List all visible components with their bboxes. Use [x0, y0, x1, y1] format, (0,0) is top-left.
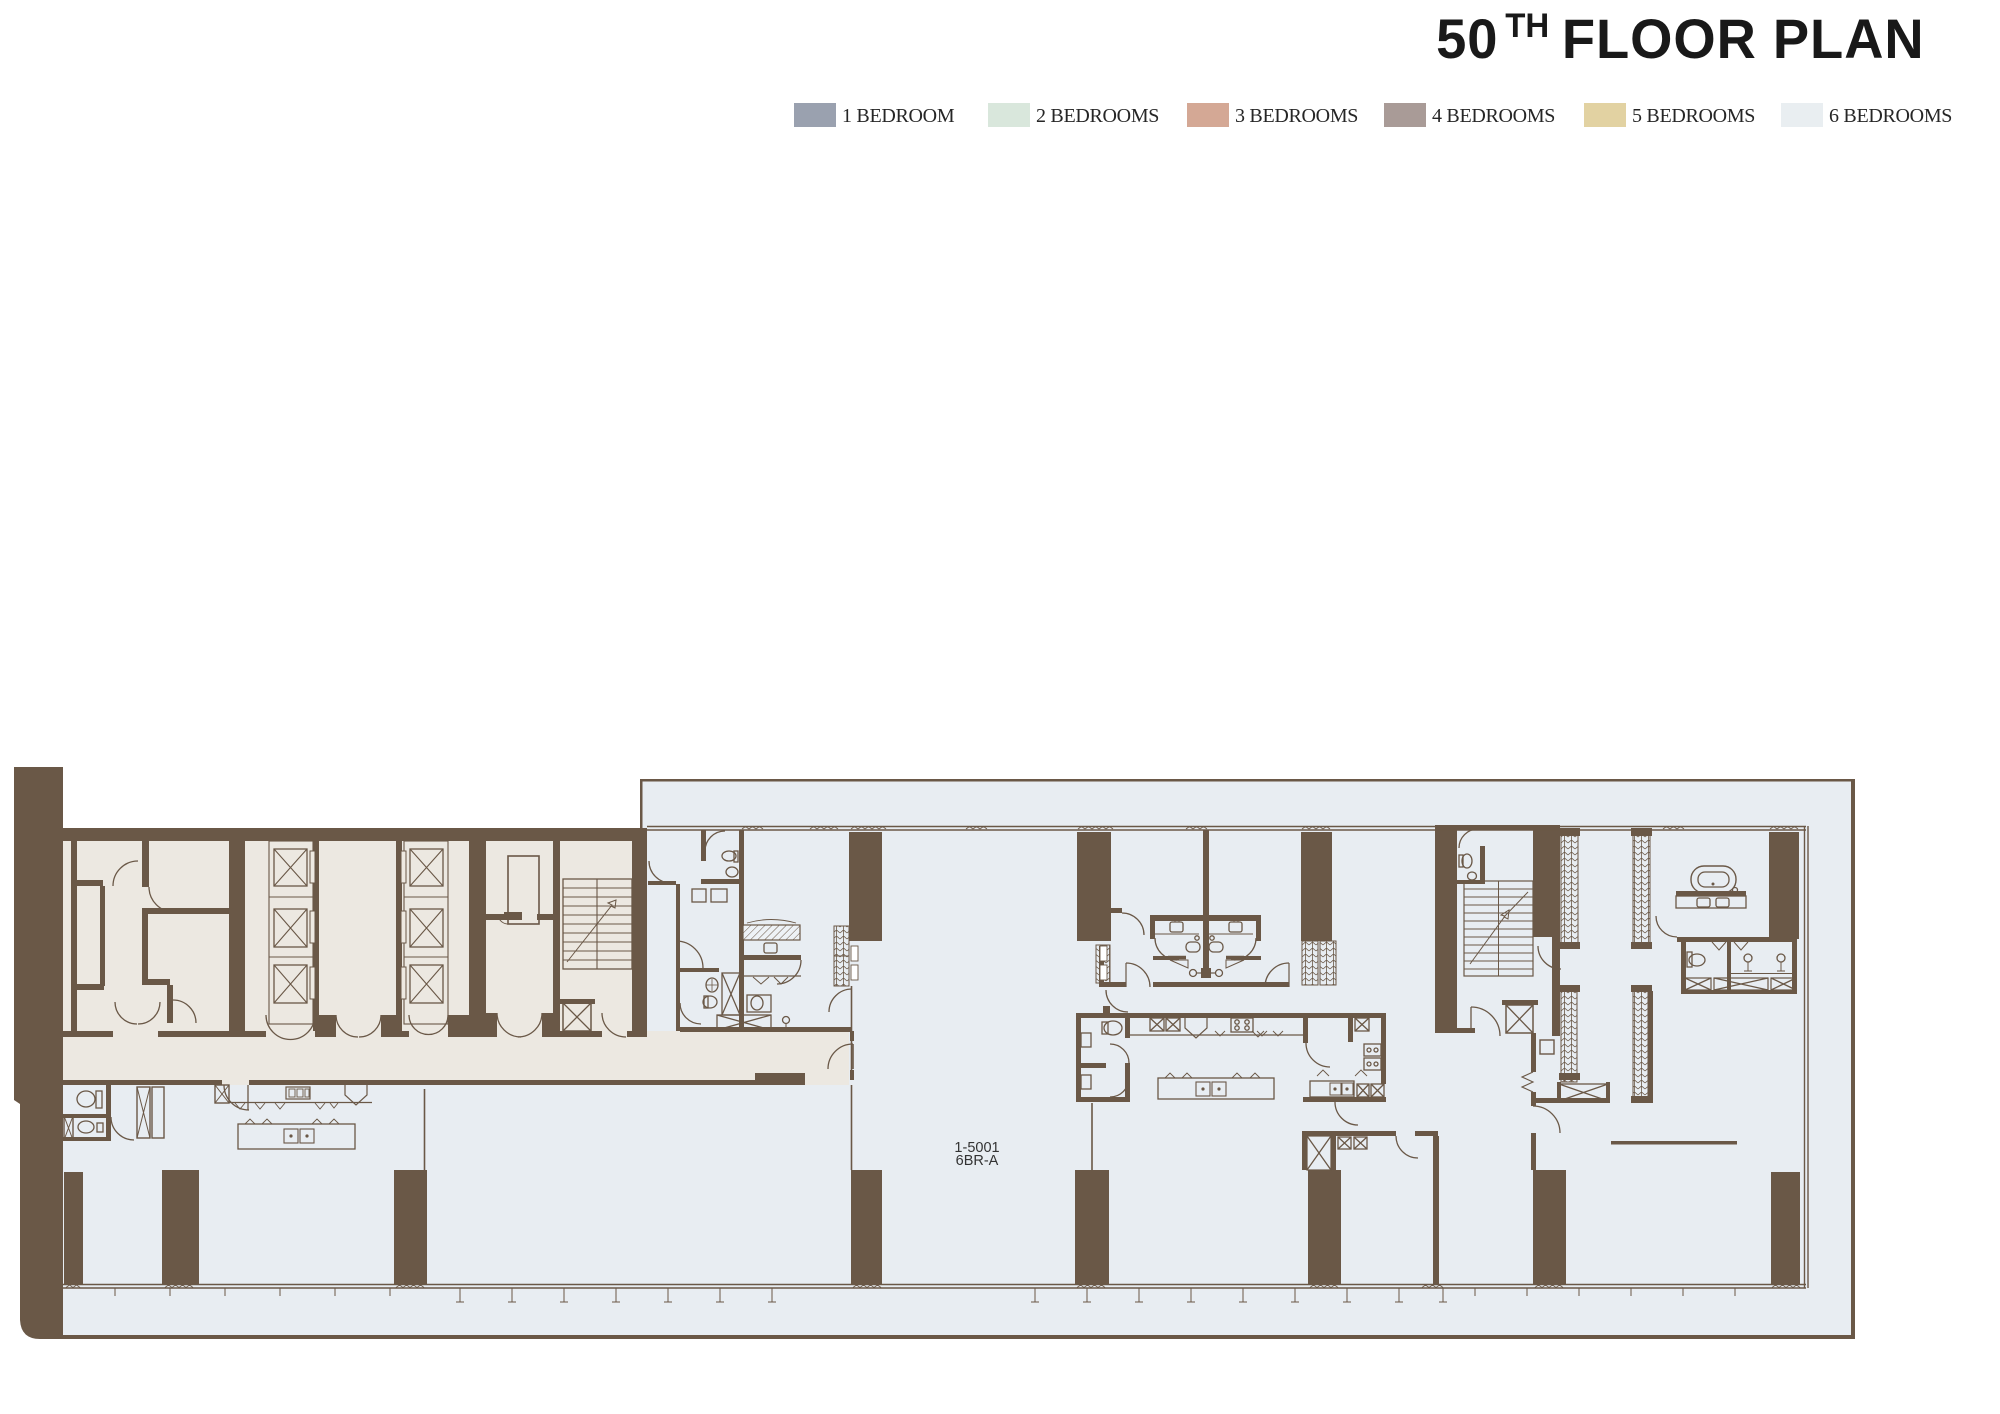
- svg-text:6BR-A: 6BR-A: [956, 1153, 999, 1169]
